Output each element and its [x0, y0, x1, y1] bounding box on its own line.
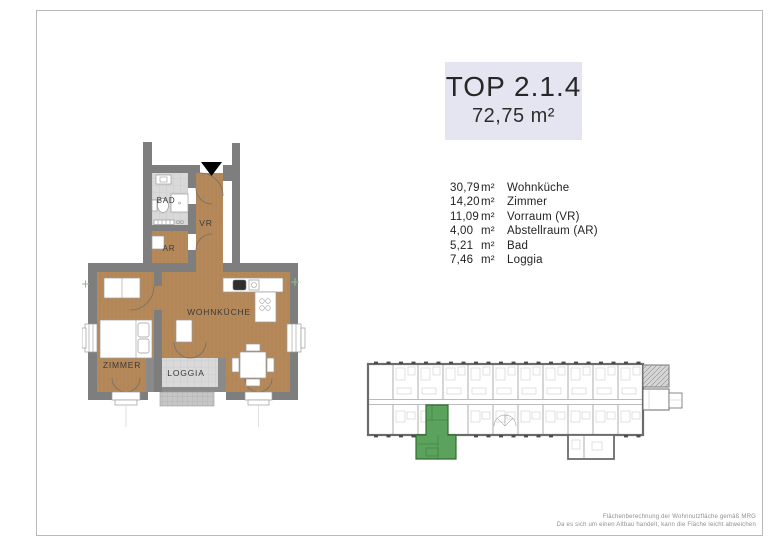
window: [287, 324, 301, 352]
room-area: 5,21: [450, 239, 481, 253]
room-label-vr: VR: [199, 218, 212, 228]
french-window: [245, 392, 272, 400]
kitchen-sink: [233, 280, 246, 290]
room-row: 7,46 m² Loggia: [450, 253, 670, 267]
room-label-bad: BAD: [157, 196, 176, 205]
pillow: [138, 339, 149, 353]
room-label-ar: AR: [163, 244, 176, 253]
floor-plan: BAD VR AR ZIMMER WOHNKÜCHE LOGGIA: [82, 136, 306, 428]
room-unit: m²: [481, 181, 507, 195]
room-area: 30,79: [450, 181, 481, 195]
chair: [267, 358, 274, 372]
room-unit: m²: [481, 195, 507, 209]
loggia-wall: [146, 358, 154, 392]
window-sill: [248, 400, 269, 405]
footnote-line-2: Da es sich um einen Altbau handelt, kann…: [557, 521, 756, 529]
room-area: 11,09: [450, 210, 481, 224]
unit-title: TOP 2.1.4: [445, 71, 582, 103]
pillow: [138, 323, 149, 337]
room-row: 4,00 m² Abstellraum (AR): [450, 224, 670, 238]
room-name: Abstellraum (AR): [507, 224, 670, 238]
south-wing: [568, 435, 614, 459]
room-unit: m²: [481, 224, 507, 238]
annex: [643, 365, 682, 410]
french-window: [112, 392, 140, 400]
room-name: Bad: [507, 239, 670, 253]
room-area: 14,20: [450, 195, 481, 209]
chair: [232, 358, 239, 372]
room-name: Wohnküche: [507, 181, 670, 195]
exterior-steps: [160, 392, 214, 406]
room-name: Loggia: [507, 253, 670, 267]
room-label-loggia: LOGGIA: [167, 368, 204, 378]
room-name: Vorraum (VR): [507, 210, 670, 224]
room-area: 4,00: [450, 224, 481, 238]
dining-table: [240, 352, 266, 378]
room-row: 14,20 m² Zimmer: [450, 195, 670, 209]
window-sill: [301, 328, 305, 348]
sideboard: [176, 320, 192, 342]
footnote: Flächenberechnung der Wohnnutzfläche gem…: [557, 513, 756, 529]
kitchen-appliance: [249, 280, 259, 290]
window: [85, 324, 97, 352]
unit-total-area: 72,75 m²: [445, 105, 582, 128]
room-unit: m²: [481, 210, 507, 224]
survey-cross-icon: [82, 281, 89, 288]
chair: [246, 344, 260, 351]
loggia-wall: [218, 358, 226, 392]
room-unit: m²: [481, 239, 507, 253]
building-overview: [366, 356, 690, 468]
room-row: 5,21 m² Bad: [450, 239, 670, 253]
room-row: 11,09 m² Vorraum (VR): [450, 210, 670, 224]
room-row: 30,79 m² Wohnküche: [450, 181, 670, 195]
footnote-line-1: Flächenberechnung der Wohnnutzfläche gem…: [557, 513, 756, 521]
window-sill: [115, 400, 137, 405]
sink: [156, 175, 171, 184]
room-unit: m²: [481, 253, 507, 267]
radiator: [154, 220, 174, 225]
window-sill: [82, 328, 86, 348]
room-list: 30,79 m² Wohnküche 14,20 m² Zimmer 11,09…: [450, 181, 670, 267]
roof-hatch: [643, 365, 669, 387]
title-box: TOP 2.1.4 72,75 m²: [445, 62, 582, 140]
kitchen-counter-side: [255, 292, 276, 322]
room-label-zimmer: ZIMMER: [103, 360, 141, 370]
chair: [246, 379, 260, 386]
room-area: 7,46: [450, 253, 481, 267]
room-name: Zimmer: [507, 195, 670, 209]
room-label-wohnkueche: WOHNKÜCHE: [187, 307, 251, 317]
